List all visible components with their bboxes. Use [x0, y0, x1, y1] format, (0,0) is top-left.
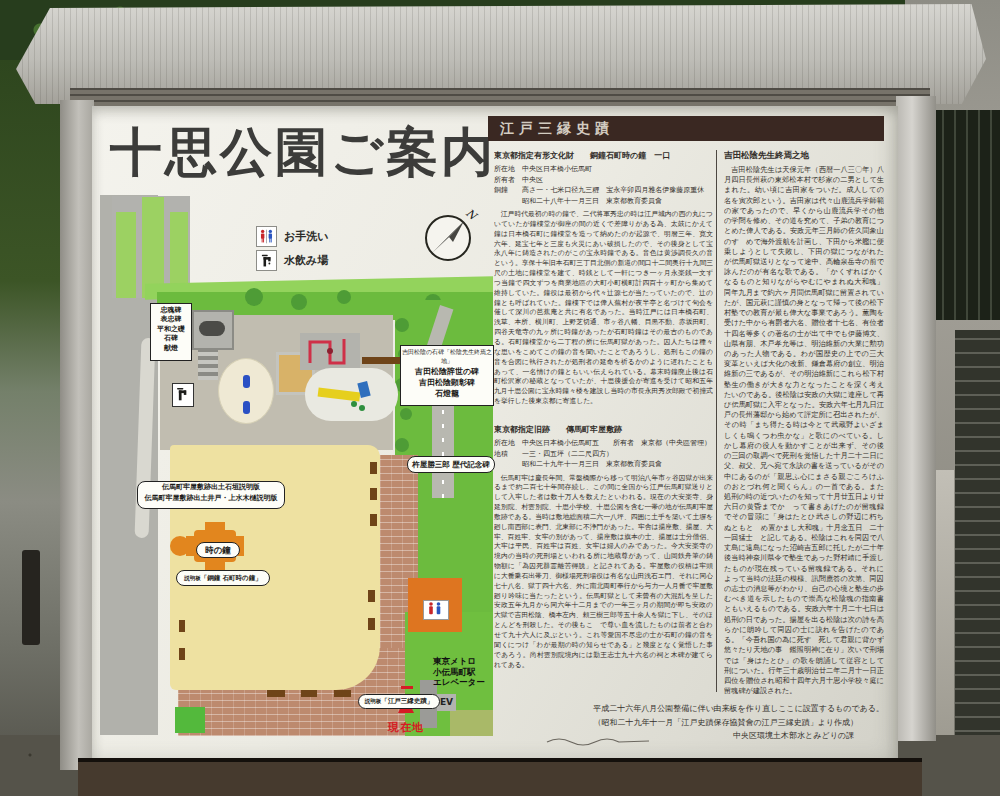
panel-header: 江戸三縁史蹟 — [488, 116, 884, 141]
map-bench — [267, 690, 285, 697]
map-monument-stone — [199, 321, 225, 336]
map-wall — [362, 357, 400, 364]
map-bench — [334, 690, 351, 697]
map-bench — [370, 462, 377, 474]
photo-of-park-sign: { "sign": { "title": "十思公園ご案内", "compass… — [0, 0, 1000, 796]
map-bench — [368, 618, 375, 630]
map-tree — [291, 294, 307, 310]
panel-yoshida-shoin: 吉田松陰先生終焉之地 吉田松陰先生は天保元年（西暦一八三〇年）八月四日長州萩の東… — [724, 150, 884, 696]
map-tree — [400, 408, 412, 420]
map-water-fountain — [243, 401, 250, 414]
map-metro-line: エレベーター — [433, 677, 495, 688]
panel-bronze-bell: 東京都指定有形文化財 銅鐘石町時の鐘 一口 所在地 中央区日本橋小伝馬町 所有者… — [494, 150, 713, 422]
panel-bronze-bell-spec: 銅鐘 高さ一・七米口径九三糎 宝永辛卯四月雅名伊豫藤原重休 — [494, 185, 713, 196]
map-label-yoshida: 吉田松陰の石碑「松陰先生終焉之地」 吉田松陰辞世の碑 吉田松陰顕彰碑 石燈籠 — [400, 345, 494, 406]
map-climb-mat — [300, 333, 360, 370]
map-play-equipment — [357, 381, 370, 398]
map-metro-line: 東京メトロ — [433, 656, 495, 667]
panel-yoshida-shoin-title: 吉田松陰先生終焉之地 — [724, 150, 884, 162]
footer-line: 平成二十六年八月公園整備に伴い由来板を作り直しここに設置するものである。 — [500, 702, 884, 716]
current-location-label: 現在地 — [388, 720, 424, 735]
panel-prison-site-date: 昭和二十九年十一月三日 東京都教育委員會 — [494, 459, 713, 470]
map-label-denma: 伝馬町牢屋敷跡出土石垣説明版 伝馬町牢屋敷跡出土井戸・上水木樋説明版 — [137, 481, 285, 509]
map-label-line: 「銅鐘 石町時の鐘」 — [201, 574, 262, 582]
map-bench — [370, 488, 377, 500]
map-green-square — [175, 707, 205, 733]
column-divider — [716, 150, 717, 692]
map-bench — [301, 690, 317, 697]
map-building — [116, 212, 136, 298]
background-fence — [955, 330, 1000, 760]
map-monument-pedestal — [192, 310, 234, 350]
map-tree — [395, 318, 409, 332]
map-label-line: 吉田松陰辞世の碑 — [401, 366, 493, 377]
footer-scribble — [545, 735, 655, 747]
map-label-prefix: 説明板 — [184, 575, 201, 581]
map-bench — [179, 620, 185, 632]
panel-prison-site: 東京都指定旧跡 傳馬町牢屋敷跡 所在地 中央区日本橋小伝馬町五 所有者 東京都（… — [494, 424, 713, 694]
map-label-line: 平和之礎 — [151, 325, 191, 334]
map-play-sand — [305, 368, 398, 421]
page-title: 十思公園ご案内 — [110, 118, 510, 188]
map-label-prefix: 説明板 — [365, 698, 382, 704]
panel-bronze-bell-date: 昭和二十八年十一月三日 東京都教育委員會 — [494, 196, 713, 207]
panel-prison-site-title: 東京都指定旧跡 傳馬町牢屋敷跡 — [494, 424, 713, 435]
panel-yoshida-shoin-body: 吉田松陰先生は天保元年（西暦一八三〇年）八月四日長州萩の東郊松本村で杉家の二男と… — [724, 165, 884, 696]
panel-bronze-bell-title: 東京都指定有形文化財 銅鐘石町時の鐘 一口 — [494, 150, 713, 161]
sign-frame-left — [60, 100, 94, 770]
map-label-edosanseki: 説明板「江戸三縁史蹟」 — [358, 694, 440, 709]
map-bench — [179, 648, 185, 660]
map-play-equipment — [351, 401, 357, 407]
map-tree — [395, 438, 409, 452]
toilet-sign-icon — [423, 600, 449, 620]
map-toilet-building — [408, 578, 462, 632]
map-path-vertical — [432, 393, 454, 498]
map-green-olive — [450, 710, 493, 736]
map-metro-label: 東京メトロ 小伝馬町駅 エレベーター — [433, 656, 495, 694]
sign-frame-right — [896, 96, 936, 741]
map-label-line: 伝馬町牢屋敷跡出土石垣説明版 — [138, 482, 284, 493]
map-label-line: 石燈籠 — [401, 388, 493, 399]
map-label-line: 表忠碑 — [151, 315, 191, 324]
map-sand-area — [218, 358, 274, 424]
map-fountain-icon — [172, 383, 194, 407]
map-slide — [318, 387, 361, 401]
background-window — [930, 110, 1000, 320]
map-tree — [337, 290, 351, 304]
map-label-monuments: 忠魂碑 表忠碑 平和之礎 石碑 献燈 — [150, 303, 192, 361]
panel-prison-site-location: 所在地 中央区日本橋小伝馬町五 所有者 東京都（中央區管理） — [494, 438, 713, 449]
map-bench — [370, 514, 377, 526]
panel-prison-site-area: 地積 一三・四五坪（二二尺四方） — [494, 449, 713, 460]
map-label-tokinokane: 時の鐘 — [196, 542, 240, 558]
map-play-equipment — [359, 405, 365, 411]
map-label-line: 献燈 — [151, 344, 191, 353]
map-label-line: 石碑 — [151, 334, 191, 343]
map-label-kineya: 杵屋勝三郎 歴代記念碑 — [407, 456, 495, 473]
panel-bronze-bell-owner: 所有者 中央区 — [494, 175, 713, 186]
map-metro-line: 小伝馬町駅 — [433, 667, 495, 678]
park-map: EV 東京メトロ 小伝馬町駅 エレベーター 現在地 忠魂碑 表忠碑 平和之礎 石… — [95, 188, 493, 744]
map-label-line: 忠魂碑 — [151, 306, 191, 315]
map-label-line: 吉田松陰の石碑「松陰先生終焉之地」 — [401, 348, 493, 366]
panel-bronze-bell-body: 江戸時代最初の時の鐘で、二代将軍秀忠の時は江戸城内の西の丸についていたが鐘樓堂が… — [494, 209, 713, 406]
map-tree — [245, 288, 263, 306]
panel-bronze-bell-location: 所在地 中央区日本橋小伝馬町 — [494, 164, 713, 175]
footer-line: （昭和二十九年十一月「江戸史蹟保存協賛會の江戸三縁史蹟」より作成） — [500, 716, 884, 730]
map-label-line: 吉田松陰顕彰碑 — [401, 377, 493, 388]
map-label-line: 「江戸三縁史蹟」 — [381, 697, 433, 705]
panel-prison-site-body: 伝馬町牢は慶長年間、常盤橋際から移って明治八年市ヶ谷囚獄が出来るまで約二百七十年… — [494, 473, 713, 670]
sign-base-panel — [78, 758, 922, 796]
current-location-tick — [401, 686, 413, 689]
map-label-dousho: 説明板「銅鐘 石町時の鐘」 — [176, 570, 270, 586]
map-water-fountain — [243, 375, 250, 388]
map-monument-steps — [198, 348, 218, 380]
map-bench — [368, 590, 375, 602]
background-bollard — [22, 550, 40, 645]
map-label-line: 伝馬町牢屋敷跡出土井戸・上水木樋説明版 — [138, 493, 284, 504]
